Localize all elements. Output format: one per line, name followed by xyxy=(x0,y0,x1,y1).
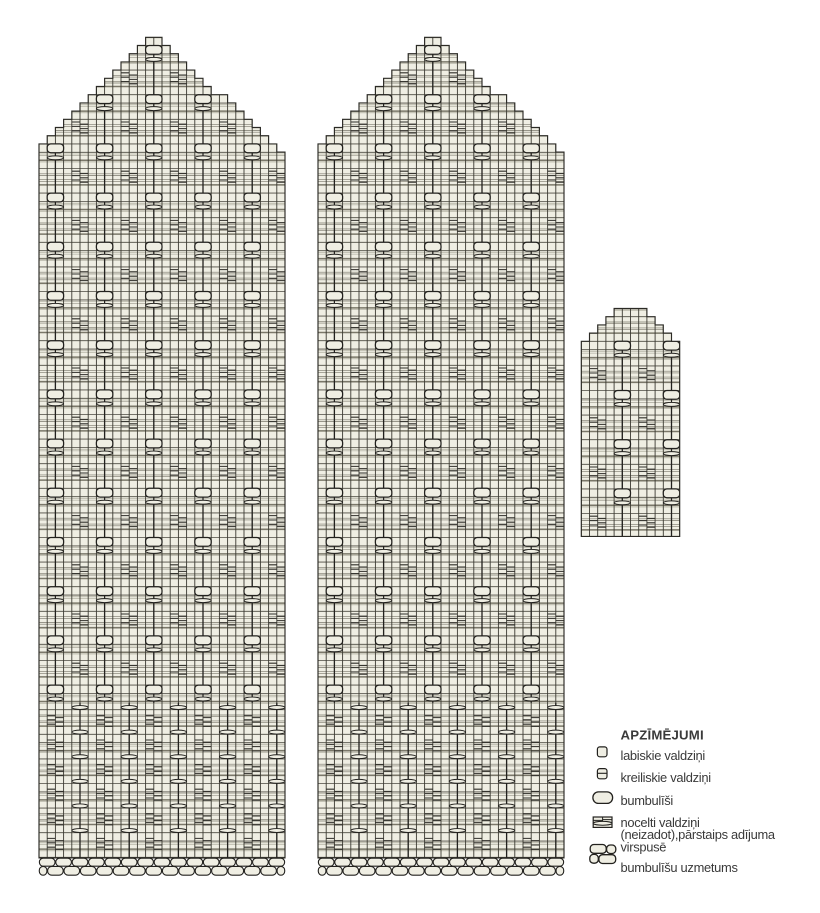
svg-text:virspusē: virspusē xyxy=(621,840,667,855)
svg-text:bumbulīši: bumbulīši xyxy=(621,793,673,808)
svg-text:kreiliskie valdziņi: kreiliskie valdziņi xyxy=(621,770,711,785)
svg-text:APZĪMĒJUMI: APZĪMĒJUMI xyxy=(621,728,704,743)
svg-text:labiskie valdziņi: labiskie valdziņi xyxy=(621,748,705,763)
svg-text:bumbulīšu uzmetums: bumbulīšu uzmetums xyxy=(621,860,738,875)
